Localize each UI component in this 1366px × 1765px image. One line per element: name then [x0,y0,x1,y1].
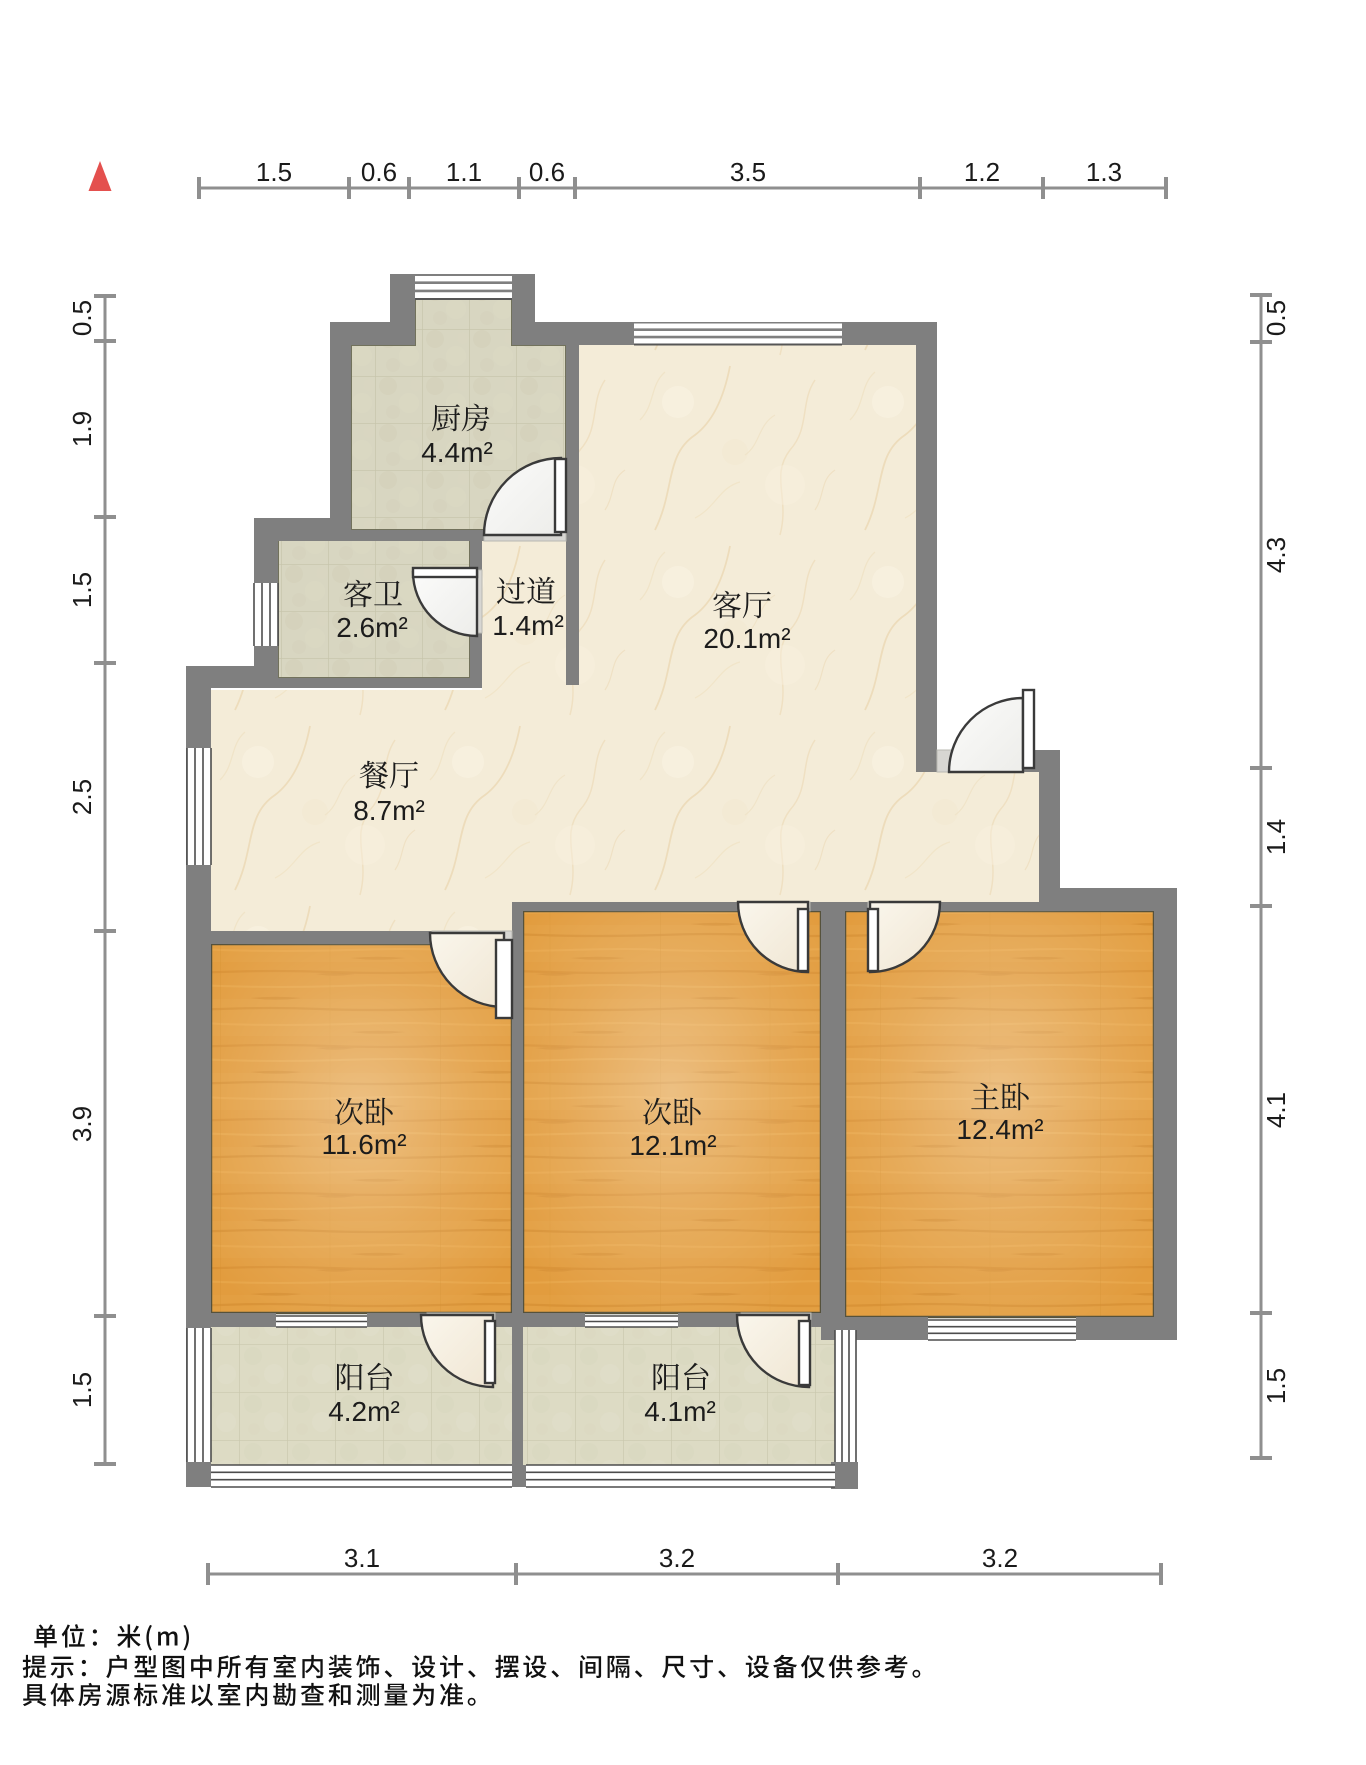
svg-text:3.1: 3.1 [344,1543,380,1573]
svg-text:1.3: 1.3 [1086,157,1122,187]
svg-text:1.9: 1.9 [67,411,97,447]
svg-text:1.1: 1.1 [446,157,482,187]
svg-text:12.4m²: 12.4m² [956,1114,1043,1145]
svg-text:4.1m²: 4.1m² [644,1396,716,1427]
svg-text:1.5: 1.5 [67,1372,97,1408]
svg-text:3.9: 3.9 [67,1106,97,1142]
svg-text:1.5: 1.5 [67,572,97,608]
svg-text:4.3: 4.3 [1261,537,1291,573]
svg-text:8.7m²: 8.7m² [353,795,425,826]
svg-text:4.4m²: 4.4m² [421,437,493,468]
svg-text:1.5: 1.5 [256,157,292,187]
svg-text:1.2: 1.2 [964,157,1000,187]
svg-text:1.5: 1.5 [1261,1368,1291,1404]
svg-text:3.2: 3.2 [659,1543,695,1573]
svg-text:11.6m²: 11.6m² [321,1129,406,1160]
svg-text:20.1m²: 20.1m² [703,623,790,654]
svg-text:4.2m²: 4.2m² [328,1396,400,1427]
svg-text:1.4: 1.4 [1261,819,1291,855]
svg-text:0.5: 0.5 [1261,300,1291,336]
svg-text:0.5: 0.5 [67,300,97,336]
svg-text:2.5: 2.5 [67,779,97,815]
svg-text:12.1m²: 12.1m² [629,1130,716,1161]
svg-text:0.6: 0.6 [529,157,565,187]
svg-text:3.5: 3.5 [730,157,766,187]
svg-text:1.4m²: 1.4m² [492,610,564,641]
svg-text:0.6: 0.6 [361,157,397,187]
svg-text:4.1: 4.1 [1261,1092,1291,1128]
svg-text:3.2: 3.2 [982,1543,1018,1573]
svg-text:2.6m²: 2.6m² [336,612,408,643]
